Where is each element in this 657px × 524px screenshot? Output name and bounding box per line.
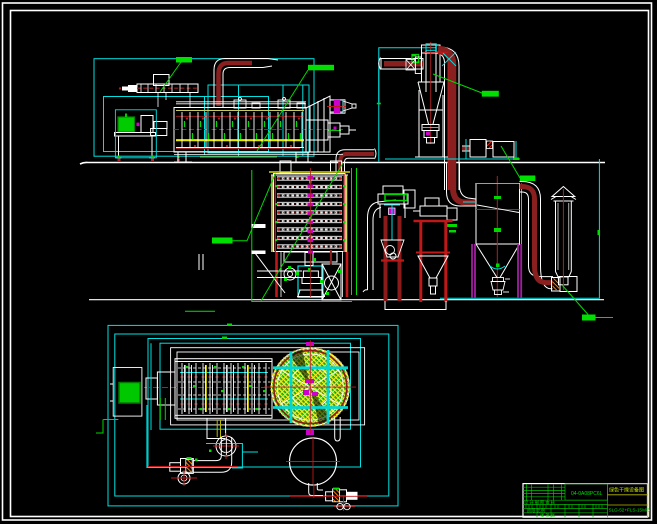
svg-text:绿色干燥设备图: 绿色干燥设备图 (609, 487, 644, 494)
svg-text:设 计 制 图 审 核: 设 计 制 图 审 核 (524, 499, 556, 506)
svg-text:张 第 张: 张 第 张 (540, 511, 556, 518)
svg-text:SLG-52+FLS-15M/B: SLG-52+FLS-15M/B (609, 508, 651, 513)
svg-text:04-0A08PC6L: 04-0A08PC6L (571, 491, 603, 497)
